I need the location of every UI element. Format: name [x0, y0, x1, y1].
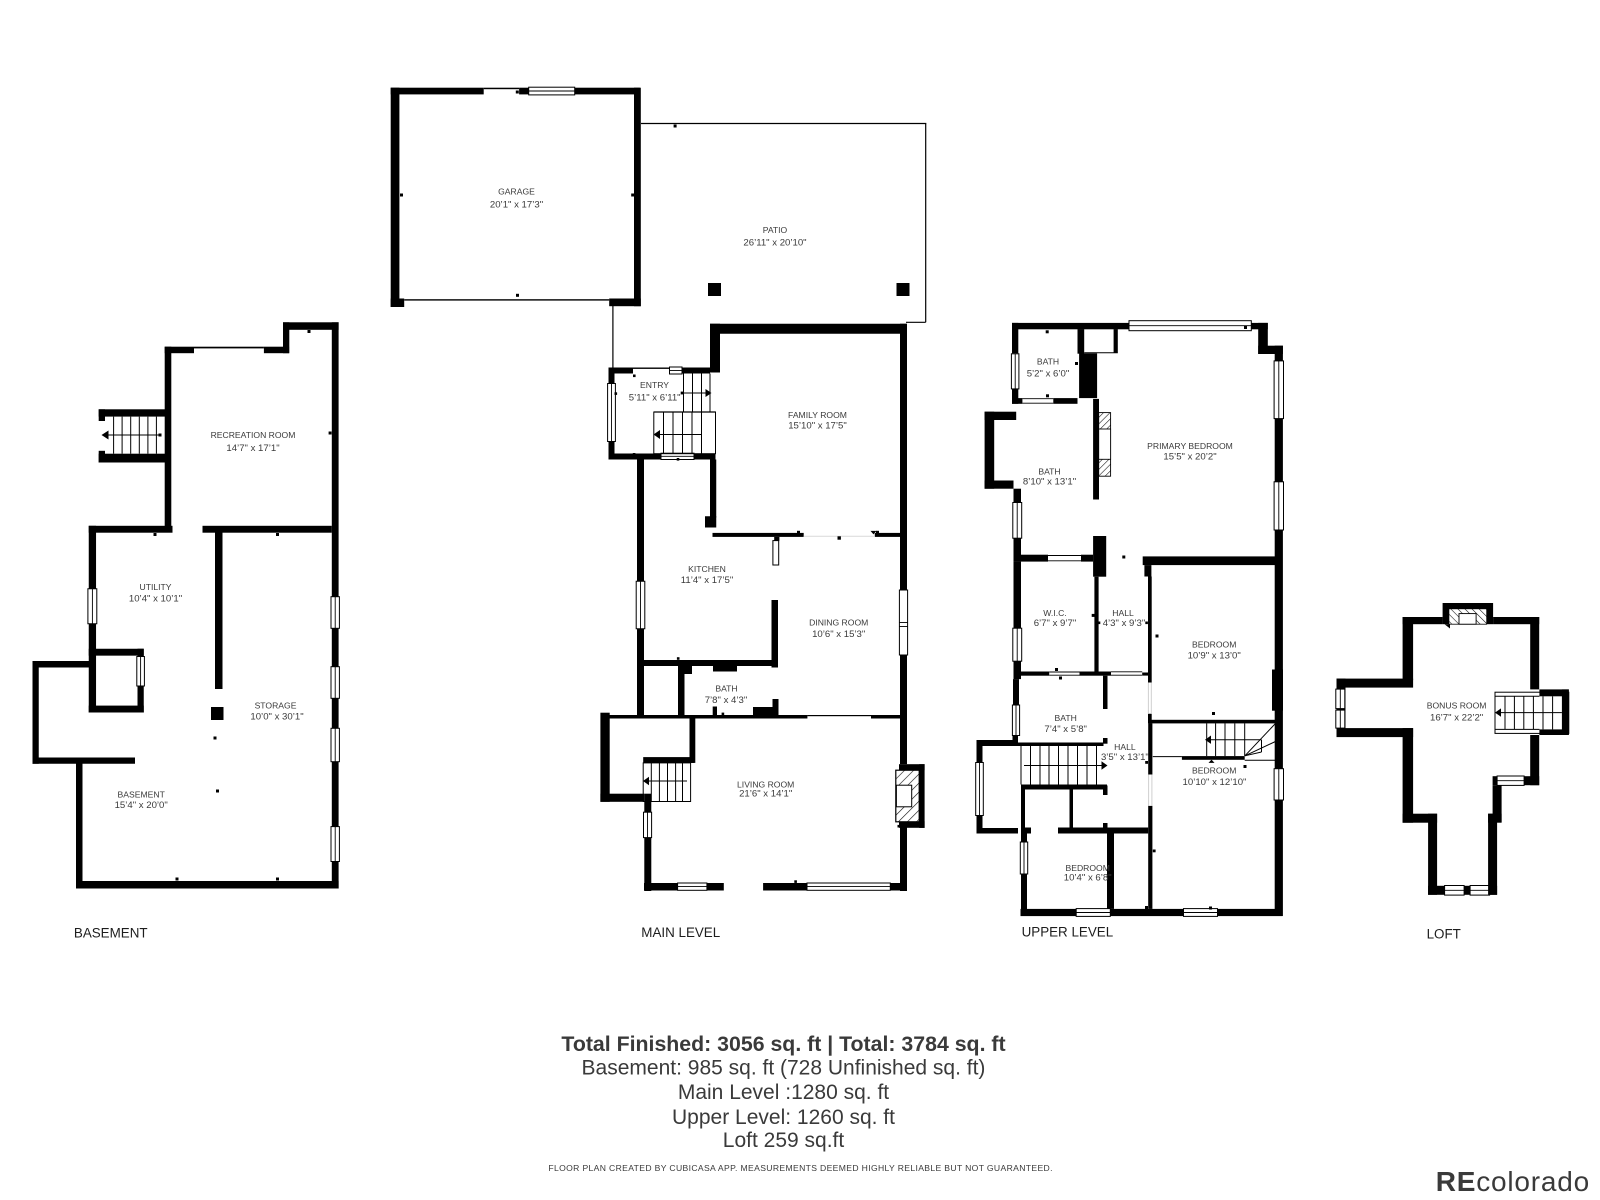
- svg-text:PATIO: PATIO: [763, 225, 788, 235]
- svg-text:BONUS ROOM: BONUS ROOM: [1427, 701, 1487, 711]
- svg-text:BASEMENT: BASEMENT: [118, 789, 166, 799]
- svg-text:7’4" x 5’8": 7’4" x 5’8": [1044, 724, 1087, 735]
- svg-text:BASEMENT: BASEMENT: [74, 926, 148, 941]
- svg-text:Upper Level: 1260 sq. ft: Upper Level: 1260 sq. ft: [672, 1106, 895, 1129]
- svg-text:10’4" x 10’1": 10’4" x 10’1": [129, 594, 182, 605]
- svg-text:BATH: BATH: [1037, 357, 1059, 367]
- svg-text:3’5" x 13’1": 3’5" x 13’1": [1101, 752, 1149, 763]
- svg-text:6’7" x 9’7": 6’7" x 9’7": [1034, 618, 1077, 629]
- svg-text:BATH: BATH: [1055, 713, 1077, 723]
- svg-text:5’11" x 6’11": 5’11" x 6’11": [629, 392, 681, 403]
- svg-text:GARAGE: GARAGE: [498, 186, 535, 196]
- svg-text:UPPER LEVEL: UPPER LEVEL: [1022, 924, 1114, 939]
- svg-text:BATH: BATH: [715, 684, 737, 694]
- svg-text:Total Finished: 3056 sq. ft |: Total Finished: 3056 sq. ft | Total: 378…: [561, 1032, 1005, 1056]
- svg-text:FAMILY ROOM: FAMILY ROOM: [788, 410, 847, 420]
- svg-text:DINING ROOM: DINING ROOM: [809, 618, 868, 628]
- svg-text:16’7" x 22’2": 16’7" x 22’2": [1430, 713, 1483, 724]
- svg-text:10’9" x 13’0": 10’9" x 13’0": [1188, 650, 1241, 661]
- svg-text:20’1" x 17’3": 20’1" x 17’3": [490, 199, 543, 210]
- svg-text:11’4" x 17’5": 11’4" x 17’5": [681, 575, 734, 586]
- svg-text:7’8" x 4’3": 7’8" x 4’3": [705, 695, 748, 706]
- svg-text:MAIN LEVEL: MAIN LEVEL: [641, 925, 720, 940]
- svg-text:BEDROOM: BEDROOM: [1192, 765, 1236, 775]
- svg-text:PRIMARY BEDROOM: PRIMARY BEDROOM: [1147, 441, 1233, 451]
- svg-text:15’10" x 17’5": 15’10" x 17’5": [788, 420, 847, 431]
- svg-text:26’11" x 20’10": 26’11" x 20’10": [743, 237, 806, 248]
- svg-text:8’10" x 13’1": 8’10" x 13’1": [1023, 476, 1076, 487]
- svg-text:BEDROOM: BEDROOM: [1065, 863, 1109, 873]
- svg-text:10’10" x 12’10": 10’10" x 12’10": [1183, 777, 1247, 788]
- svg-text:KITCHEN: KITCHEN: [688, 564, 726, 574]
- svg-text:15’4" x 20’0": 15’4" x 20’0": [115, 800, 168, 811]
- svg-text:Basement: 985 sq. ft (728 Unfi: Basement: 985 sq. ft (728 Unfinished sq.…: [582, 1057, 986, 1080]
- svg-text:10’0" x 30’1": 10’0" x 30’1": [250, 712, 303, 723]
- svg-text:HALL: HALL: [1114, 742, 1136, 752]
- svg-text:Loft 259 sq.ft: Loft 259 sq.ft: [723, 1129, 845, 1152]
- svg-text:BEDROOM: BEDROOM: [1192, 640, 1236, 650]
- svg-text:21’6" x 14’1": 21’6" x 14’1": [739, 789, 792, 800]
- svg-text:LOFT: LOFT: [1427, 927, 1461, 942]
- svg-text:REcolorado: REcolorado: [1436, 1166, 1590, 1197]
- svg-text:RECREATION ROOM: RECREATION ROOM: [211, 430, 296, 440]
- svg-text:W.I.C.: W.I.C.: [1043, 608, 1066, 618]
- svg-text:15’5" x 20’2": 15’5" x 20’2": [1163, 452, 1216, 463]
- svg-text:BATH: BATH: [1038, 467, 1060, 477]
- svg-text:Main Level :1280 sq. ft: Main Level :1280 sq. ft: [678, 1081, 889, 1104]
- svg-text:HALL: HALL: [1112, 608, 1134, 618]
- svg-text:10’6" x 15’3": 10’6" x 15’3": [812, 629, 865, 640]
- svg-text:4’3" x 9’3": 4’3" x 9’3": [1103, 618, 1146, 629]
- svg-text:STORAGE: STORAGE: [255, 700, 297, 710]
- svg-text:14’7" x 17’1": 14’7" x 17’1": [226, 443, 279, 454]
- svg-text:ENTRY: ENTRY: [640, 380, 669, 390]
- svg-text:FLOOR PLAN CREATED BY CUBICASA: FLOOR PLAN CREATED BY CUBICASA APP. MEAS…: [548, 1163, 1052, 1173]
- svg-text:5’2" x 6’0": 5’2" x 6’0": [1027, 368, 1070, 379]
- svg-text:10’4" x 6’8": 10’4" x 6’8": [1064, 873, 1112, 884]
- svg-text:UTILITY: UTILITY: [140, 582, 172, 592]
